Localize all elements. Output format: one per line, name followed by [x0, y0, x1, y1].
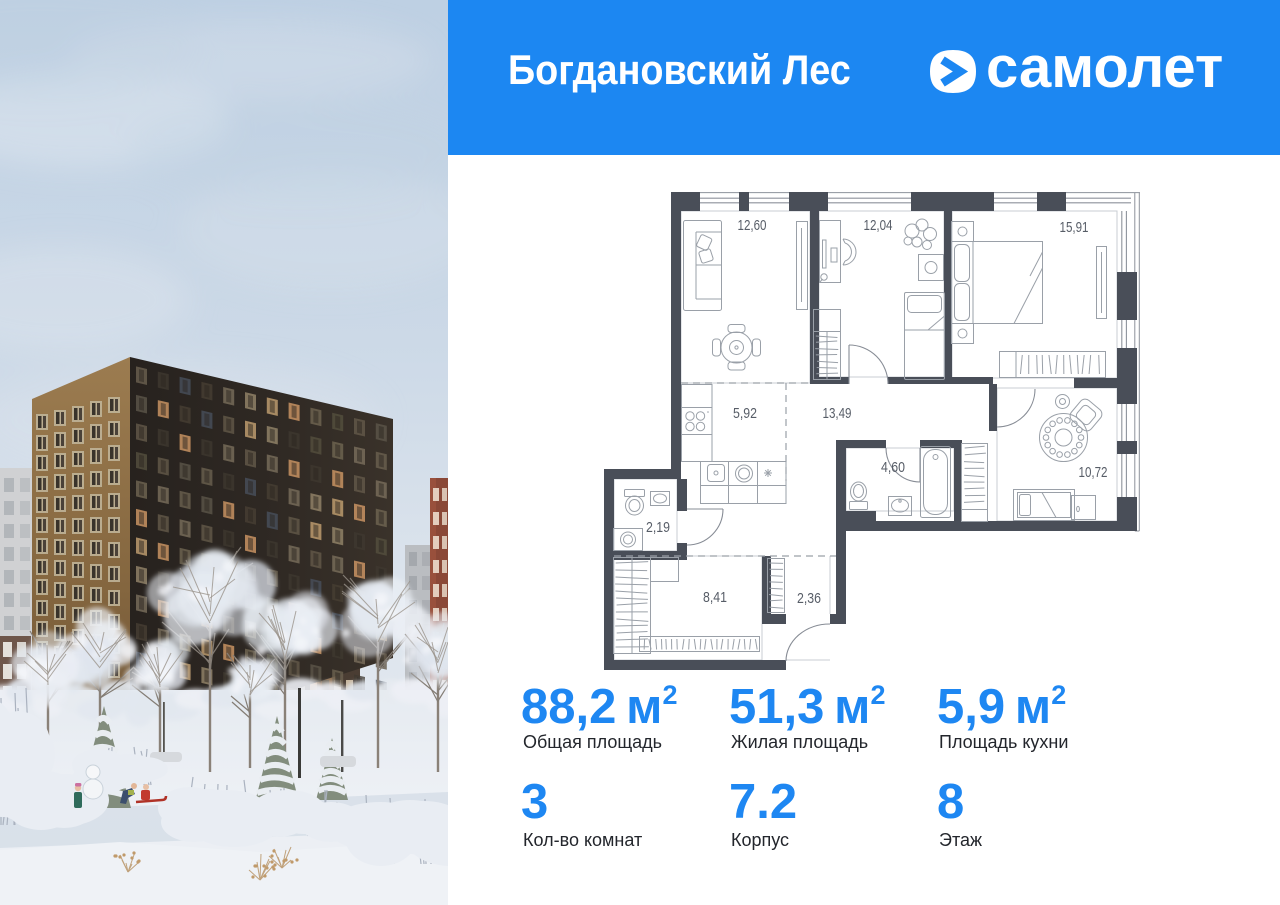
- svg-text:15,91: 15,91: [1060, 220, 1089, 236]
- svg-text:12,60: 12,60: [738, 218, 767, 234]
- svg-text:2,19: 2,19: [646, 520, 670, 536]
- svg-text:8,41: 8,41: [703, 590, 727, 606]
- svg-text:13,49: 13,49: [823, 406, 852, 422]
- svg-text:5,92: 5,92: [733, 406, 757, 422]
- svg-text:2,36: 2,36: [797, 591, 821, 607]
- svg-text:10,72: 10,72: [1079, 465, 1108, 481]
- svg-text:12,04: 12,04: [864, 218, 893, 234]
- svg-text:4,60: 4,60: [881, 460, 905, 476]
